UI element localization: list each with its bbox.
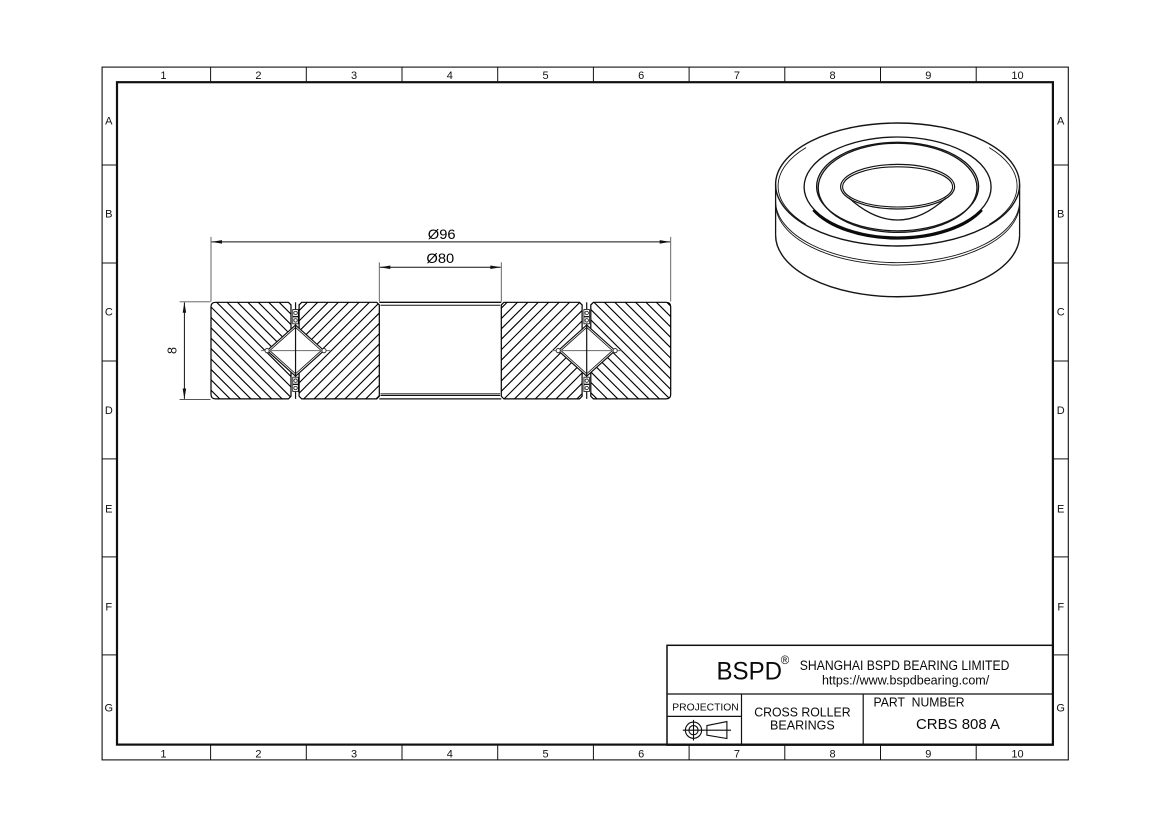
svg-text:A: A — [105, 116, 113, 128]
svg-text:3: 3 — [351, 70, 357, 82]
svg-text:E: E — [105, 504, 112, 516]
svg-text:B: B — [105, 209, 112, 221]
svg-text:3: 3 — [351, 749, 357, 761]
svg-text:8: 8 — [830, 70, 836, 82]
svg-text:D: D — [105, 405, 113, 417]
svg-text:F: F — [105, 602, 112, 614]
svg-text:Ø80: Ø80 — [426, 251, 454, 266]
svg-text:6: 6 — [638, 70, 644, 82]
svg-text:PROJECTION: PROJECTION — [672, 702, 739, 714]
svg-text:7: 7 — [734, 70, 740, 82]
svg-text:CRBS 808 A: CRBS 808 A — [916, 716, 1000, 733]
svg-text:BEARINGS: BEARINGS — [770, 717, 835, 732]
svg-text:BSPD: BSPD — [717, 658, 783, 686]
svg-text:G: G — [1056, 703, 1065, 715]
svg-text:PART NUMBER: PART NUMBER — [874, 694, 965, 709]
svg-text:2: 2 — [255, 749, 261, 761]
svg-text:10: 10 — [1011, 70, 1023, 82]
svg-text:4: 4 — [447, 749, 453, 761]
svg-text:B: B — [1057, 209, 1064, 221]
svg-text:®: ® — [781, 655, 790, 667]
svg-text:9: 9 — [925, 749, 931, 761]
svg-text:G: G — [105, 703, 114, 715]
svg-text:C: C — [1057, 307, 1065, 319]
svg-text:D: D — [1057, 405, 1065, 417]
svg-text:2: 2 — [255, 70, 261, 82]
svg-text:A: A — [1057, 116, 1065, 128]
svg-text:1: 1 — [160, 70, 166, 82]
svg-text:C: C — [105, 307, 113, 319]
svg-text:8: 8 — [166, 347, 180, 354]
svg-text:6: 6 — [638, 749, 644, 761]
svg-text:4: 4 — [447, 70, 453, 82]
svg-text:https://www.bspdbearing.com/: https://www.bspdbearing.com/ — [822, 673, 990, 688]
svg-text:E: E — [1057, 504, 1064, 516]
svg-text:9: 9 — [925, 70, 931, 82]
svg-text:Ø96: Ø96 — [428, 227, 456, 242]
svg-text:10: 10 — [1011, 749, 1023, 761]
svg-text:7: 7 — [734, 749, 740, 761]
svg-text:8: 8 — [830, 749, 836, 761]
svg-text:SHANGHAI BSPD BEARING LIMITED: SHANGHAI BSPD BEARING LIMITED — [800, 658, 1010, 673]
svg-text:5: 5 — [542, 749, 548, 761]
svg-text:F: F — [1057, 602, 1064, 614]
svg-text:1: 1 — [160, 749, 166, 761]
svg-text:5: 5 — [542, 70, 548, 82]
